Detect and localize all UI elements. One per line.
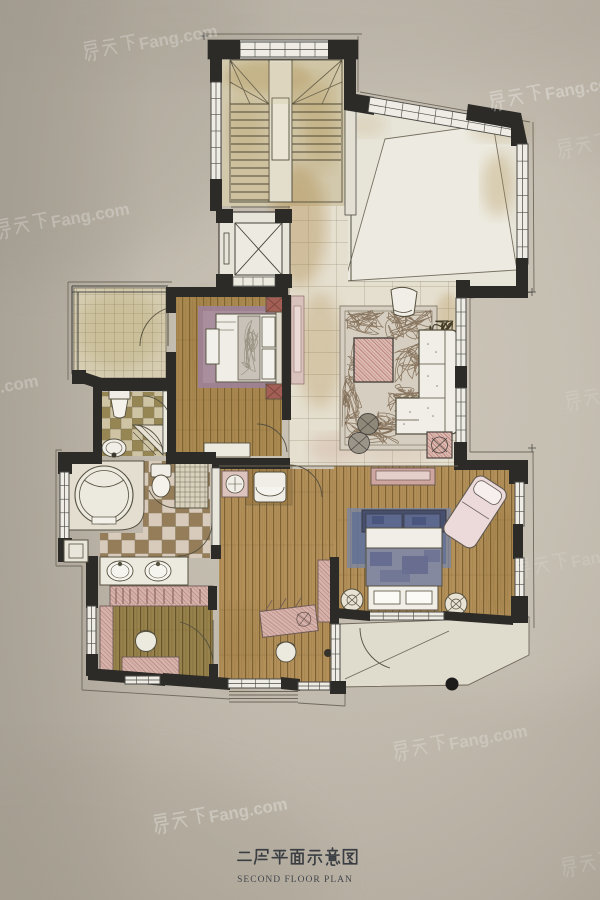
svg-text:SECOND FLOOR PLAN: SECOND FLOOR PLAN: [237, 875, 353, 885]
